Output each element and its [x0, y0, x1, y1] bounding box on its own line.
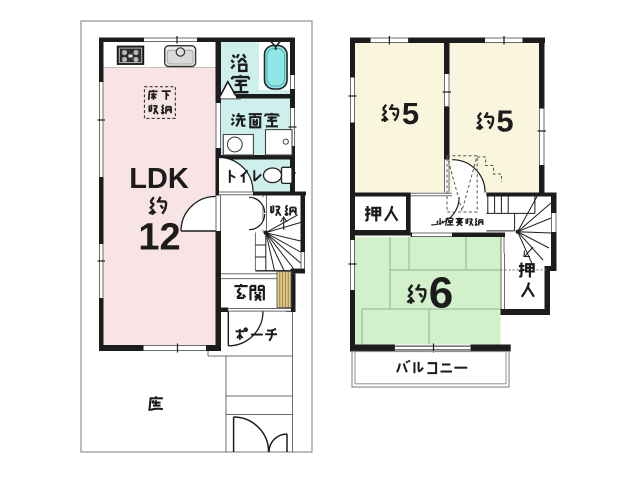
svg-text:LDK: LDK — [129, 163, 189, 195]
svg-text:6: 6 — [429, 269, 453, 318]
svg-text:5: 5 — [402, 96, 419, 131]
svg-text:5: 5 — [496, 104, 513, 139]
svg-text:12: 12 — [138, 217, 180, 259]
